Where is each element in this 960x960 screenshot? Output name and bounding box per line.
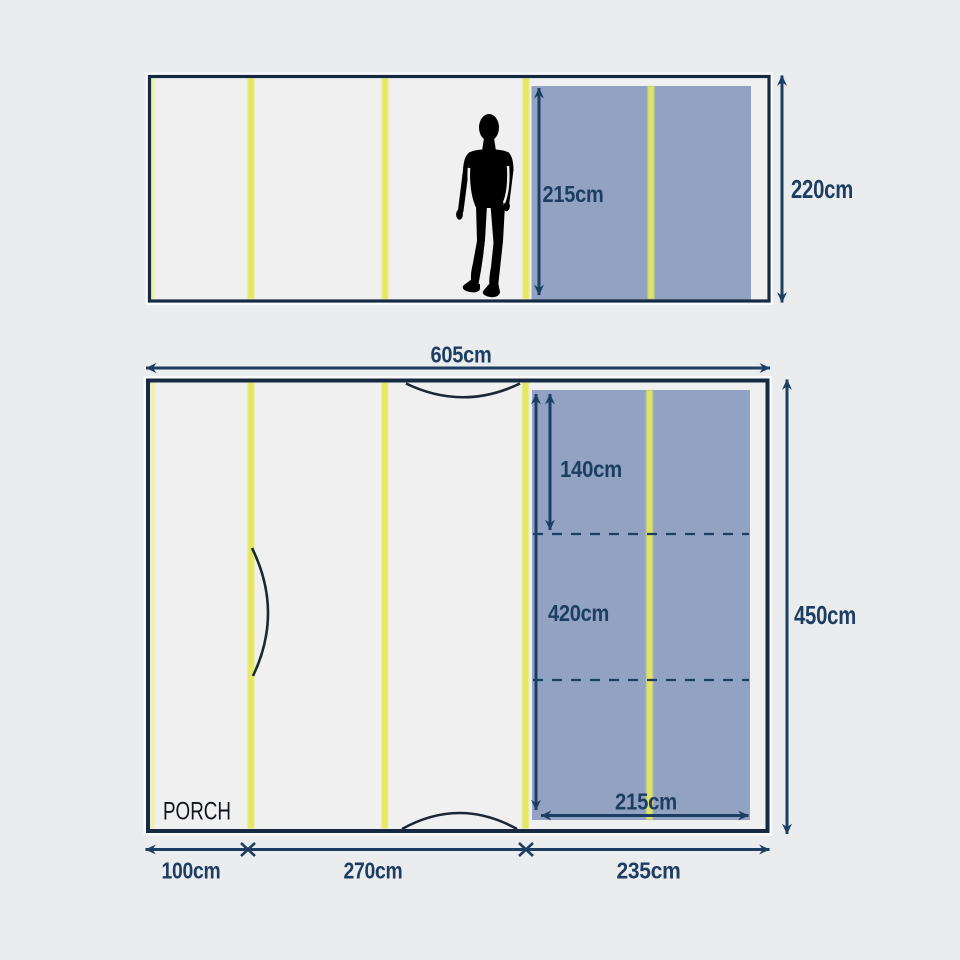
svg-text:270cm: 270cm [344,858,403,884]
svg-text:215cm: 215cm [615,789,677,815]
svg-text:140cm: 140cm [560,456,622,482]
svg-text:235cm: 235cm [617,858,681,884]
svg-text:605cm: 605cm [431,342,492,368]
svg-text:100cm: 100cm [162,858,221,884]
svg-text:215cm: 215cm [543,181,604,207]
svg-text:220cm: 220cm [791,174,853,204]
svg-text:420cm: 420cm [548,600,609,626]
svg-text:450cm: 450cm [794,600,856,630]
svg-text:PORCH: PORCH [163,798,231,826]
